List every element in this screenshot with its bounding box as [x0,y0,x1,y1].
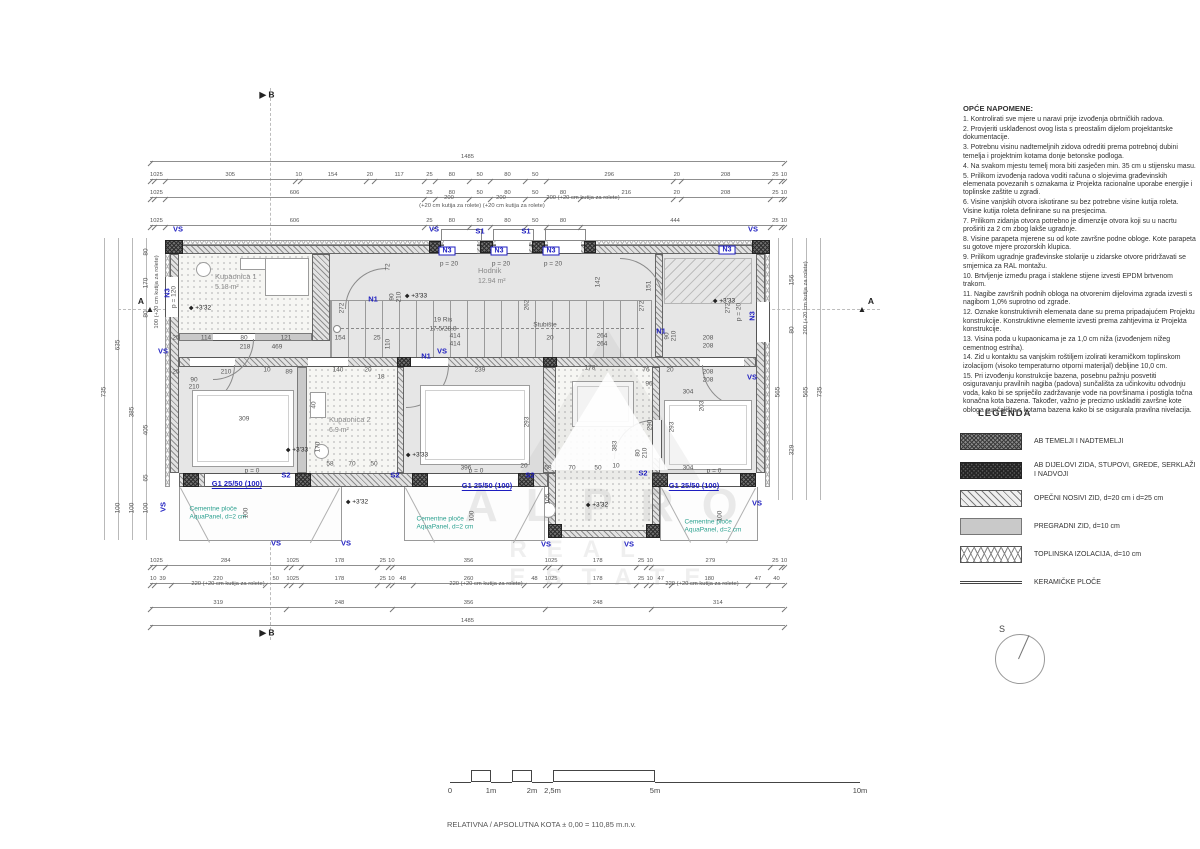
annotation-dim: 170 [315,442,322,453]
annotation-dim: 151 [646,281,653,292]
note-item: 14. Zid u kontaktu sa vanjskim roštiljem… [963,354,1196,371]
dimension-value: 25 [424,190,435,196]
scale-step [655,770,860,783]
north-arrow: S [995,624,1065,694]
dimension-segment: 314 [651,598,785,608]
annotation-dim: 208 [703,343,714,350]
note-item: 3. Potrebnu visinu nadtemeljnih zidova o… [963,144,1196,161]
annotation-blue: N1 [421,352,431,361]
annotation-dim: 80 [789,326,796,333]
dimension-segment: 248 [545,598,651,608]
dimension-value: 279 [651,558,770,564]
dimension-segment: 25 [424,188,435,198]
annotation-dim: 565 [775,387,782,398]
dimension-value: 48 [524,576,545,582]
scale-step [471,770,492,782]
annotation-dim: 80 [635,449,642,456]
annotation-dim: 469 [272,344,283,351]
annotation-dim: 304 [683,389,694,396]
annotation-blue: S2 [390,471,399,480]
annotation-dim: 70 [568,465,575,472]
annotation-dim: 76 [642,367,649,374]
dimension-value: 248 [545,600,651,606]
dimension-segment: 25 [154,170,165,180]
annotation-sub: 200 [496,195,506,201]
annotation-sub: 100 (+20 cm kutija za rolete) [154,255,160,328]
dimension-segment: 25 [636,556,647,566]
annotation-dim: 90 [389,293,396,300]
dimension-value: 444 [580,218,770,224]
notes-list: 1. Kontrolirati sve mjere u naravi prije… [963,116,1196,415]
dimension-value: 10 [781,218,785,224]
dimension-segment: 48 [524,574,545,584]
annotation-dim: 735 [817,387,824,398]
scale-step [532,770,553,783]
annotation-teal: Cementne ploče AquaPanel, d=2 cm [417,516,474,533]
annotation-lvl: +3'32 [586,502,608,509]
dimension-segment: 25 [291,574,302,584]
dimension-value: 248 [286,600,392,606]
dimension-segment: 47 [748,574,768,584]
dimension-segment: 25 [154,188,165,198]
sw-ab2-swatch-icon [960,462,1022,479]
dimension-value: 10 [781,172,785,178]
annotation-dim: 735 [101,387,108,398]
annotation-dim: 18 [377,374,384,381]
annotation-blue: VS [271,539,281,548]
annotation-dim: 208 [703,377,714,384]
annotation-lvl: +3'32 [346,499,368,506]
annotation-dim: 100 [717,511,724,522]
annotation-dim: 405 [143,425,150,436]
annotation-dim: 40 [311,401,318,408]
annotation-dim: 264 [597,333,608,340]
annotation-dim: 20 [364,367,371,374]
dimension-segment: 25 [377,574,388,584]
scale-bar: 01m2m2,5m5m10m [450,770,860,800]
dimension-segment: 606 [165,188,424,198]
dimension-value: 356 [392,558,544,564]
dimension-segment: 356 [392,598,544,608]
annotation-dim: 156 [789,275,796,286]
annotation-dim: 383 [612,441,619,452]
annotation-sub: 220 (+20 cm kutija za rolete) [191,581,264,587]
annotation-dim: 25 [172,369,179,376]
dimension-value: 50 [525,218,546,224]
dimension-segment: 10 [781,556,785,566]
dimension-value: 178 [560,576,636,582]
legend-label: PREGRADNI ZID, d=10 cm [1034,522,1120,531]
dimension-segment: 25 [154,556,165,566]
annotation-bluebox: N3 [491,247,508,256]
dimension-segment: 20 [673,170,682,180]
dimension-value: 305 [165,172,295,178]
scale-tick-label: 1m [486,786,496,795]
scale-tick-label: 10m [853,786,868,795]
annotation-blue: S1 [521,227,530,236]
dimension-value: 25 [377,576,388,582]
annotation-lvl: +3'32 [189,305,211,312]
dimension-segment: 25 [636,574,647,584]
annotation-dim: 10 [263,367,270,374]
annotation-sub: (+20 cm kutija za rolete) (+20 cm kutija… [419,203,545,209]
dimension-segment: 356 [392,556,544,566]
annotation-dim: 264 [597,341,608,348]
dimension-guide-line [118,238,119,540]
annotation-dim: 10 [612,463,619,470]
stairs-name: Stubište [533,322,557,329]
dimension-value: 80 [546,218,580,224]
dimension-value: 1485 [150,618,785,624]
annotation-dim: 290 [647,420,654,431]
dimension-segment: 25 [549,556,560,566]
dimension-segment: 178 [560,574,636,584]
dimension-segment: 1485 [150,616,785,626]
dimension-segment: 50 [469,188,490,198]
annotation-blue: VS [158,347,168,356]
legend-label: AB DIJELOVI ZIDA, STUPOVI, GREDE, SERKLA… [1034,461,1196,479]
dimension-segment: 178 [301,556,377,566]
annotation-dim: 208 [703,335,714,342]
dimension-value: 178 [301,558,377,564]
annotation-dim: 262 [524,300,531,311]
annotation-dim: p = 20 [492,261,510,268]
annotation-dim: 154 [335,335,346,342]
annotation-dim: 309 [239,416,250,423]
dimension-value: 25 [549,576,560,582]
dimension-segment: 10 [781,170,785,180]
annotation-dim: 25 [373,335,380,342]
dimension-chain: 319248356248314 [150,598,785,608]
dimension-segment: 80 [490,170,524,180]
scale-step [512,770,533,782]
dimension-value: 1485 [150,154,785,160]
dimension-segment: 50 [469,216,490,226]
annotation-blue: VS [752,499,762,508]
annotation-sec: A [138,296,144,306]
annotation-blue: VS [747,373,757,382]
stairs-riser-dim: 17.5/28.8 [429,326,456,333]
dimension-value: 50 [265,576,286,582]
dimension-value: 80 [435,172,469,178]
annotation-dim: 414 [450,341,461,348]
annotation-dim: 114 [201,335,211,342]
annotation-dim: 140 [333,367,344,374]
note-item: 11. Nagibe završnih podnih obloga na otv… [963,291,1196,308]
annotation-blue: VS [159,502,168,512]
annotation-sub: 220 (+20 cm kutija za rolete) [449,581,522,587]
dimension-value: 154 [300,172,366,178]
dimension-value: 319 [150,600,286,606]
annotation-sub: 220 (+20 cm kutija za rolete) [665,581,738,587]
dimension-segment: 80 [435,216,469,226]
annotation-blue: S1 [475,227,484,236]
annotation-dim: 414 [450,333,461,340]
annotation-dim: 304 [683,465,694,472]
legend-row: AB TEMELJI I NADTEMELJI [960,433,1196,450]
dimension-segment: 20 [366,170,375,180]
annotation-dim: 20 [520,463,527,470]
scale-tick-label: 2,5m [544,786,561,795]
dimension-value: 25 [424,172,435,178]
annotation-blue: S2 [525,471,534,480]
dimension-value: 25 [770,218,781,224]
legend-label: TOPLINSKA IZOLACIJA, d=10 cm [1034,550,1141,559]
dimension-segment: 50 [525,188,546,198]
dimension-segment: 10 [781,188,785,198]
annotation-teal: Cementne ploče AquaPanel, d=2 cm [190,506,247,523]
dimension-value: 39 [154,576,171,582]
note-item: 7. Prilikom zidanja otvora potrebno je d… [963,218,1196,235]
annotation-dim: 142 [595,277,602,288]
annotation-blue: S2 [638,469,647,478]
note-item: 10. Brtvljenje između praga i staklene s… [963,273,1196,290]
note-item: 1. Kontrolirati sve mjere u naravi prije… [963,116,1196,124]
dimension-value: 284 [165,558,286,564]
annotation-blue: VS [429,225,439,234]
dimension-value: 50 [469,190,490,196]
dimension-segment: 284 [165,556,286,566]
scale-step [491,770,512,783]
dimension-segment: 606 [165,216,424,226]
dimension-segment: 25 [154,216,165,226]
dimension-chain: 10256062580508050804442510 [150,216,785,226]
annotation-blueu: G1 25/50 (100) [669,481,719,491]
annotation-dim: 210 [189,384,200,391]
annotation-dim: 50 [594,465,601,472]
dimension-segment: 39 [154,574,171,584]
dimension-value: 25 [636,576,647,582]
scale-tick-label: 2m [527,786,537,795]
dimension-value: 25 [549,558,560,564]
kota-note: RELATIVNA / APSOLUTNA KOTA ± 0,00 = 110,… [447,820,636,829]
dimension-segment: 25 [770,556,781,566]
drawing-sheet: Kupaonica 1 5.18 m² Hodnik 12.94 m² Spav… [0,0,1200,849]
annotation-blue: VS [748,225,758,234]
annotation-sec: ▶ B [259,90,274,101]
dimension-chain: 1485 [150,152,785,162]
dimension-segment: 25 [424,170,435,180]
sw-ab1-swatch-icon [960,433,1022,450]
dimension-value: 25 [770,190,781,196]
dimension-segment: 296 [546,170,673,180]
annotation-dim: 293 [524,417,531,428]
legend-title: LEGENDA [978,408,1196,419]
dimension-value: 25 [154,218,165,224]
dimension-value: 48 [392,576,413,582]
note-item: 2. Provjeriti usklađenost ovog lista s p… [963,126,1196,143]
legend-label: AB TEMELJI I NADTEMELJI [1034,437,1123,446]
dimension-value: 25 [291,576,302,582]
dimension-value: 117 [374,172,424,178]
north-label: S [999,624,1005,634]
annotation-dim: 96 [645,381,652,388]
annotation-dim: 210 [671,331,678,342]
dimension-value: 314 [651,600,785,606]
legend-row: OPEČNI NOSIVI ZID, d=20 cm i d=25 cm [960,490,1196,507]
annotation-dim: 105 [545,494,552,505]
dimension-value: 178 [301,576,377,582]
dimension-value: 25 [636,558,647,564]
note-item: 4. Na svakom mjestu temelj mora biti zas… [963,163,1196,171]
legend-row: TOPLINSKA IZOLACIJA, d=10 cm [960,546,1196,563]
dimension-value: 25 [154,190,165,196]
annotation-dim: 170 [143,278,150,289]
annotation-dim: 72 [385,263,392,270]
dimension-value: 606 [165,218,424,224]
dimension-segment: 248 [286,598,392,608]
dimension-guide-line [778,238,779,500]
legend-label: KERAMIČKE PLOČE [1034,578,1101,587]
annotation-dim: 100 [243,508,250,519]
dimension-segment: 1485 [150,152,785,162]
annotation-dim: 100 [129,503,136,514]
dimension-value: 50 [525,172,546,178]
annotation-dim: 272 [639,301,646,312]
dimension-value: 25 [154,172,165,178]
annotation-sec: A [868,296,874,306]
annotation-blue: S2 [281,471,290,480]
dimension-chain: 102528410251782510356102517825102792510 [150,556,785,566]
dimension-segment: 25 [291,556,302,566]
legend-row: KERAMIČKE PLOČE [960,574,1196,591]
general-notes: OPĆE NAPOMENE: 1. Kontrolirati sve mjere… [963,104,1196,416]
dimension-segment: 40 [768,574,785,584]
dimension-value: 80 [435,218,469,224]
annotation-blueu: G1 25/50 (100) [212,479,262,489]
dimension-value: 50 [469,172,490,178]
sw-brick-swatch-icon [960,490,1022,507]
dimension-segment: 154 [300,170,366,180]
annotation-dim: 100 [469,511,476,522]
dimension-value: 208 [681,190,770,196]
dimension-value: 25 [770,172,781,178]
annotation-dim: 70 [348,461,355,468]
annotation-dim: 396 [461,465,472,472]
annotation-sub: 200 [444,195,454,201]
dimension-segment: 25 [549,574,560,584]
note-item: 9. Prilikom ugradnje građevinske stolari… [963,254,1196,271]
annotation-blueu: G1 25/50 (100) [462,481,512,491]
annotation-dim: 210 [396,292,403,303]
annotation-dim: p = 120 [171,286,178,308]
annotation-dim: p = 0 [245,468,260,475]
dimension-value: 20 [673,190,682,196]
annotation-blue: VS [173,225,183,234]
dimension-chain: 102530510154201172580508050296202082510 [150,170,785,180]
legend-row: AB DIJELOVI ZIDA, STUPOVI, GREDE, SERKLA… [960,461,1196,479]
dimension-value: 10 [781,190,785,196]
annotation-blue: VS [341,539,351,548]
annotation-dim: 80 [143,310,150,317]
dimension-value: 296 [546,172,673,178]
annotation-dim: 90 [664,332,671,339]
annotation-dim: 121 [281,335,292,342]
dimension-segment: 50 [469,170,490,180]
sw-part-swatch-icon [960,518,1022,535]
annotation-blue: N1 [368,295,378,304]
dimension-segment: 50 [525,170,546,180]
annotation-sub: 200 (+20 cm kutija za rolete) [546,195,619,201]
note-item: 13. Visina poda u kupaonicama je za 1,0 … [963,336,1196,353]
annotation-dim: 80 [143,248,150,255]
annotation-teal: Cementne ploče AquaPanel, d=2 cm [685,519,742,536]
annotation-sec: ▲ [858,304,866,314]
dimension-value: 178 [560,558,636,564]
dimension-value: 20 [673,172,682,178]
dimension-segment: 50 [265,574,286,584]
dimension-value: 25 [154,558,165,564]
dimension-segment: 25 [770,170,781,180]
note-item: 6. Visine vanjskih otvora iskotirane su … [963,199,1196,216]
dimension-guide-line [132,238,133,540]
annotation-dim: 210 [221,369,232,376]
annotation-dim: 25 [172,335,179,342]
annotation-sub: 200 (+20 cm kutija za rolete) [803,261,809,334]
annotation-dim: 89 [285,369,292,376]
dimension-segment: 208 [681,170,770,180]
dimension-segment: 25 [770,188,781,198]
scale-tick-label: 0 [448,786,452,795]
annotation-dim: 65 [143,474,150,481]
dimension-value: 47 [748,576,768,582]
dimension-value: 80 [490,172,524,178]
dimension-segment: 319 [150,598,286,608]
dimension-guide-line [820,238,821,500]
dimension-segment: 25 [770,216,781,226]
annotation-dim: 272 [339,303,346,314]
dimension-value: 50 [525,190,546,196]
annotation-dim: 385 [129,407,136,418]
dimension-segment: 305 [165,170,295,180]
scale-tick-label: 5m [650,786,660,795]
dimension-segment: 80 [490,216,524,226]
dimension-value: 25 [291,558,302,564]
dimension-segment: 178 [301,574,377,584]
annotation-bluebox: N3 [439,247,456,256]
note-item: 12. Oznake konstruktivnih elemenata dane… [963,309,1196,334]
annotation-dim: 100 [115,503,122,514]
dimension-value: 25 [770,558,781,564]
annotation-dim: 208 [703,369,714,376]
legend-label: OPEČNI NOSIVI ZID, d=20 cm i d=25 cm [1034,494,1163,503]
annotation-dim: 210 [642,448,649,459]
dimension-segment: 178 [560,556,636,566]
stairs-risers: 19 Ris [434,317,452,324]
annotation-blue: N3 [748,311,757,321]
annotation-dim: 293 [669,422,676,433]
annotation-blue: VS [624,540,634,549]
annotation-dim: 635 [115,340,122,351]
dimension-chain: 1025606258050805080216202082510 [150,188,785,198]
legend-list: AB TEMELJI I NADTEMELJIAB DIJELOVI ZIDA,… [960,433,1196,591]
annotation-dim: p = 20 [544,261,562,268]
annotation-dim: p = 0 [707,468,722,475]
dimension-chain: 1485 [150,616,785,626]
dimension-segment: 10 [781,216,785,226]
dimension-value: 356 [392,600,544,606]
legend-row: PREGRADNI ZID, d=10 cm [960,518,1196,535]
dimension-segment: 20 [673,188,682,198]
annotation-blue: VS [437,347,447,356]
dimension-segment: 208 [681,188,770,198]
annotation-blue: VS [541,540,551,549]
sw-cer-swatch-icon [960,581,1022,584]
annotation-dim: 90 [190,377,197,384]
annotation-bluebox: N3 [543,247,560,256]
dimension-value: 10 [781,558,785,564]
annotation-dim: 329 [789,445,796,456]
